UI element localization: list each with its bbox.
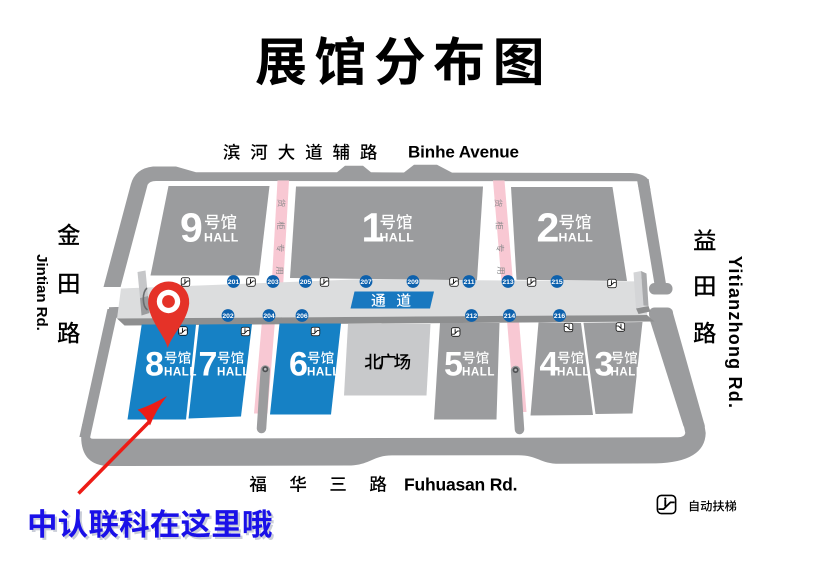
svg-text:HALL: HALL xyxy=(559,231,594,245)
svg-text:HALL: HALL xyxy=(557,366,590,379)
svg-text:215: 215 xyxy=(551,279,563,286)
svg-text:214: 214 xyxy=(504,313,516,320)
svg-text:2: 2 xyxy=(537,205,560,251)
svg-text:4: 4 xyxy=(540,346,559,384)
svg-text:HALL: HALL xyxy=(611,366,644,379)
svg-text:9: 9 xyxy=(180,205,203,251)
svg-text:7: 7 xyxy=(199,346,218,384)
svg-text:204: 204 xyxy=(263,313,275,320)
svg-text:Binhe Avenue: Binhe Avenue xyxy=(408,143,519,162)
svg-text:HALL: HALL xyxy=(380,231,415,245)
svg-text:HALL: HALL xyxy=(307,366,340,379)
svg-text:Jintian Rd.: Jintian Rd. xyxy=(33,254,50,331)
svg-text:HALL: HALL xyxy=(462,366,495,379)
svg-text:8: 8 xyxy=(145,346,164,384)
svg-text:203: 203 xyxy=(267,279,279,286)
svg-text:6: 6 xyxy=(289,346,308,384)
svg-text:209: 209 xyxy=(407,279,419,286)
svg-text:211: 211 xyxy=(464,279,475,286)
svg-text:206: 206 xyxy=(296,313,308,320)
svg-text:HALL: HALL xyxy=(164,366,197,379)
svg-text:HALL: HALL xyxy=(204,231,239,245)
svg-text:HALL: HALL xyxy=(217,366,250,379)
svg-text:Fuhuasan Rd.: Fuhuasan Rd. xyxy=(404,475,517,495)
svg-text:212: 212 xyxy=(466,313,478,320)
svg-text:201: 201 xyxy=(228,279,240,286)
svg-text:213: 213 xyxy=(502,279,514,286)
svg-text:216: 216 xyxy=(554,313,566,320)
svg-text:205: 205 xyxy=(300,279,312,286)
svg-text:207: 207 xyxy=(360,279,372,286)
svg-text:5: 5 xyxy=(444,346,463,384)
svg-text:202: 202 xyxy=(222,313,234,320)
svg-text:Yitianzhong Rd.: Yitianzhong Rd. xyxy=(725,256,745,409)
